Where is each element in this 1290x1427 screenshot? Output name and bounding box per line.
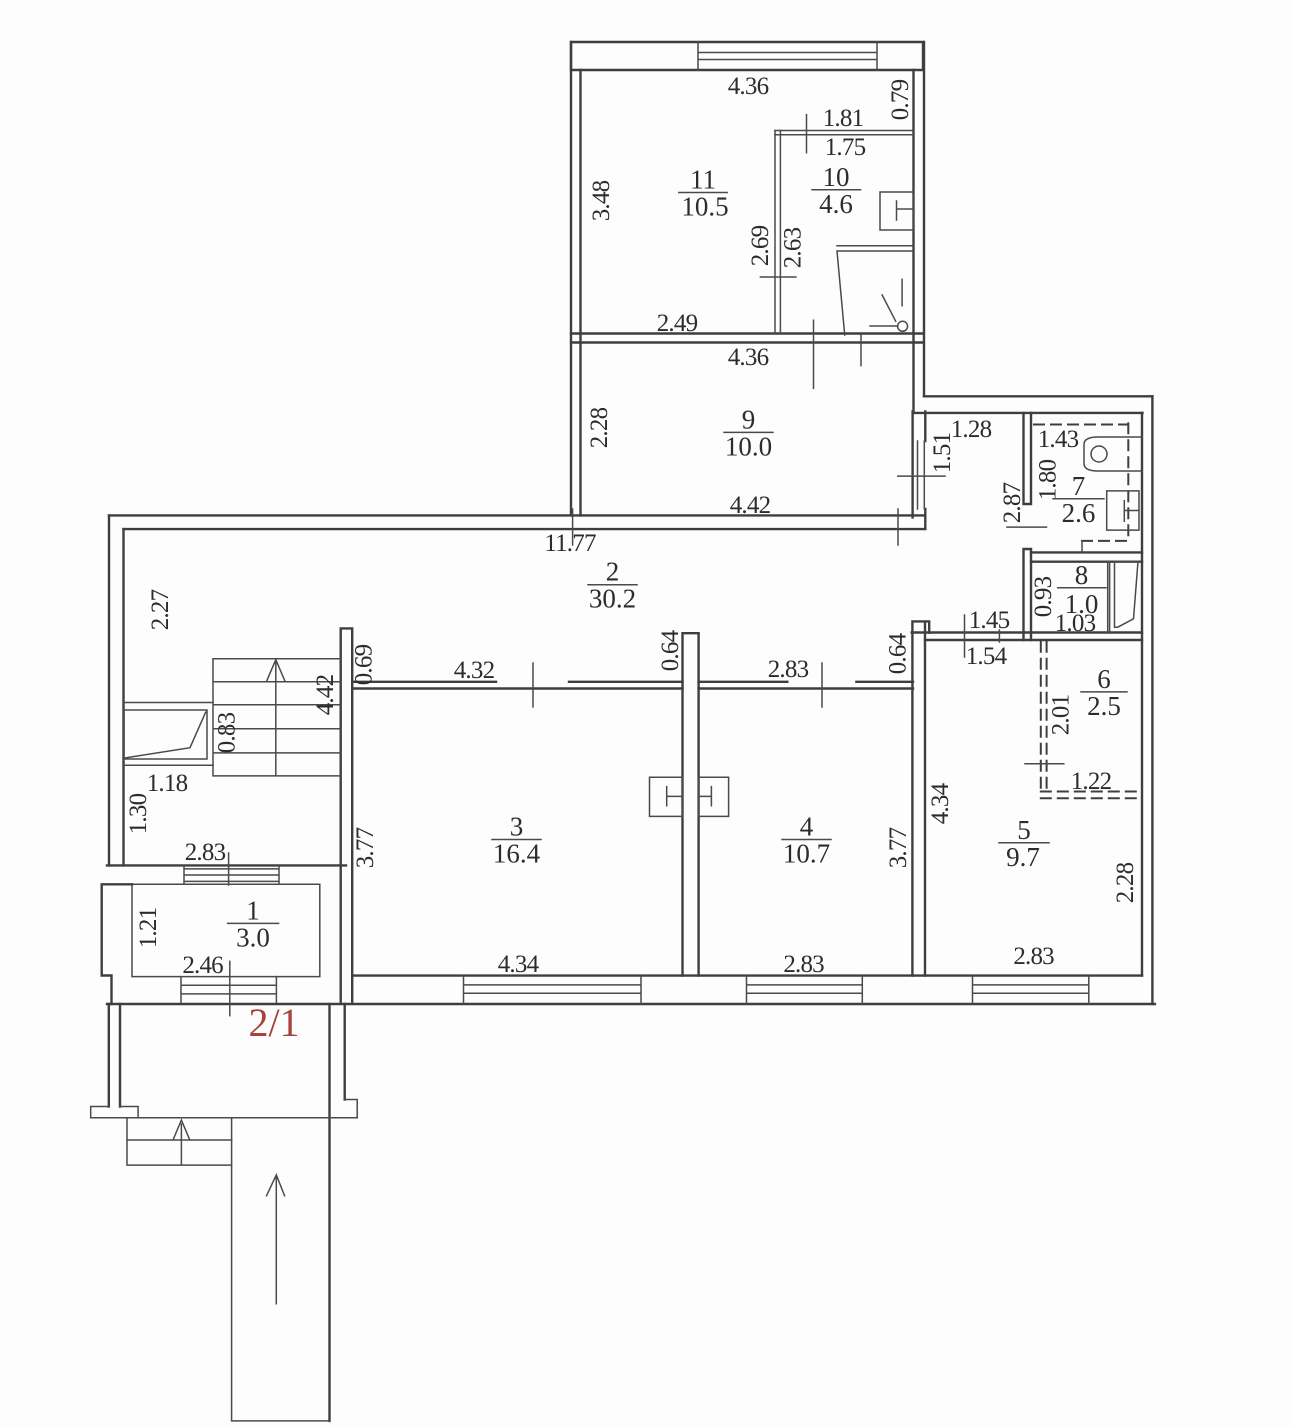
- svg-text:1.80: 1.80: [1035, 459, 1062, 500]
- svg-text:1: 1: [246, 895, 260, 925]
- svg-text:1.30: 1.30: [125, 793, 152, 834]
- svg-text:2/1: 2/1: [248, 1000, 299, 1045]
- svg-text:2.28: 2.28: [1112, 862, 1139, 903]
- svg-text:4.34: 4.34: [927, 782, 954, 824]
- svg-text:10.7: 10.7: [783, 839, 830, 869]
- svg-text:6: 6: [1097, 664, 1111, 694]
- svg-text:2.27: 2.27: [147, 589, 174, 630]
- svg-text:2.83: 2.83: [783, 951, 824, 978]
- svg-text:8: 8: [1075, 560, 1089, 590]
- svg-text:4.36: 4.36: [728, 73, 769, 100]
- svg-text:3.77: 3.77: [885, 827, 912, 868]
- svg-text:7: 7: [1072, 471, 1086, 501]
- svg-text:1.43: 1.43: [1038, 426, 1079, 453]
- svg-text:4: 4: [800, 812, 814, 842]
- svg-text:0.79: 0.79: [887, 79, 914, 120]
- svg-text:1.54: 1.54: [966, 643, 1008, 670]
- svg-text:10.0: 10.0: [725, 431, 772, 461]
- svg-text:1.21: 1.21: [135, 908, 162, 949]
- svg-text:0.64: 0.64: [885, 632, 912, 674]
- svg-text:30.2: 30.2: [589, 584, 636, 614]
- svg-text:11.77: 11.77: [544, 530, 596, 557]
- svg-text:2.87: 2.87: [999, 482, 1026, 523]
- svg-text:4.36: 4.36: [728, 344, 769, 371]
- svg-text:2.6: 2.6: [1062, 498, 1096, 528]
- svg-text:3.77: 3.77: [352, 827, 379, 868]
- svg-text:3.0: 3.0: [236, 922, 270, 952]
- svg-text:2.5: 2.5: [1087, 691, 1121, 721]
- svg-text:1.81: 1.81: [823, 105, 864, 132]
- svg-text:2.63: 2.63: [780, 227, 807, 268]
- svg-text:0.64: 0.64: [657, 629, 684, 671]
- svg-text:4.32: 4.32: [454, 657, 495, 684]
- svg-text:10.5: 10.5: [681, 192, 728, 222]
- svg-text:1.22: 1.22: [1071, 768, 1112, 795]
- svg-text:16.4: 16.4: [493, 839, 541, 869]
- svg-text:1.45: 1.45: [969, 607, 1010, 634]
- svg-text:2.49: 2.49: [657, 310, 698, 337]
- svg-text:2.28: 2.28: [586, 407, 613, 448]
- svg-text:3: 3: [510, 812, 524, 842]
- svg-text:9.7: 9.7: [1006, 842, 1040, 872]
- svg-text:2.46: 2.46: [182, 952, 223, 979]
- svg-text:4.42: 4.42: [730, 492, 771, 519]
- svg-text:1.51: 1.51: [929, 433, 956, 474]
- svg-text:4.6: 4.6: [819, 189, 853, 219]
- svg-text:0.69: 0.69: [351, 644, 378, 685]
- svg-text:9: 9: [742, 404, 756, 434]
- svg-text:11: 11: [690, 165, 716, 195]
- svg-text:3.48: 3.48: [588, 180, 615, 221]
- svg-text:1.75: 1.75: [825, 134, 866, 161]
- svg-text:4.34: 4.34: [498, 951, 540, 978]
- svg-text:0.83: 0.83: [214, 712, 241, 753]
- svg-text:2.83: 2.83: [185, 839, 226, 866]
- svg-text:0.93: 0.93: [1030, 576, 1057, 617]
- svg-text:2.01: 2.01: [1048, 695, 1075, 736]
- svg-text:1.03: 1.03: [1055, 610, 1096, 637]
- svg-text:1.18: 1.18: [147, 770, 188, 797]
- svg-text:2.69: 2.69: [747, 225, 774, 266]
- svg-text:10: 10: [823, 162, 850, 192]
- svg-text:2: 2: [606, 557, 620, 587]
- svg-text:1.28: 1.28: [951, 416, 992, 443]
- svg-text:2.83: 2.83: [768, 656, 809, 683]
- svg-text:4.42: 4.42: [312, 674, 339, 715]
- svg-text:2.83: 2.83: [1013, 943, 1054, 970]
- svg-text:5: 5: [1017, 815, 1031, 845]
